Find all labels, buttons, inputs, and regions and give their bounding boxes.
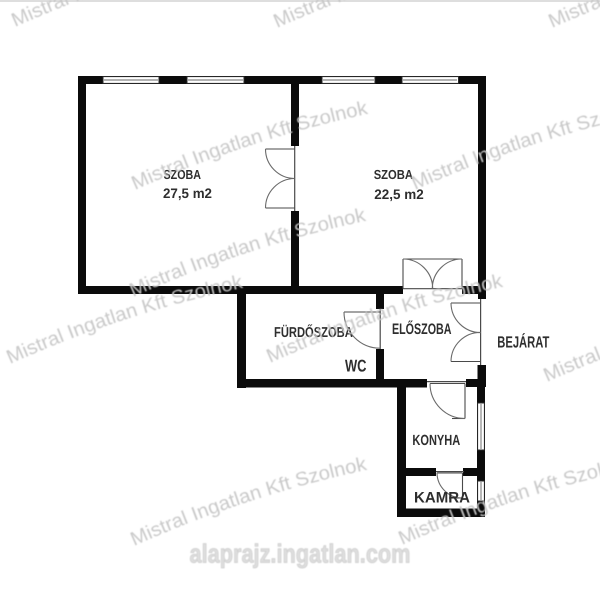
svg-text:ELŐSZOBA: ELŐSZOBA [392, 320, 452, 338]
svg-text:alaprajz.ingatlan.com: alaprajz.ingatlan.com [190, 539, 411, 569]
svg-text:SZOBA: SZOBA [374, 167, 414, 182]
svg-text:BEJÁRAT: BEJÁRAT [497, 332, 549, 351]
svg-text:KONYHA: KONYHA [412, 433, 460, 449]
svg-text:27,5 m2: 27,5 m2 [163, 186, 212, 201]
svg-text:WC: WC [345, 357, 367, 376]
